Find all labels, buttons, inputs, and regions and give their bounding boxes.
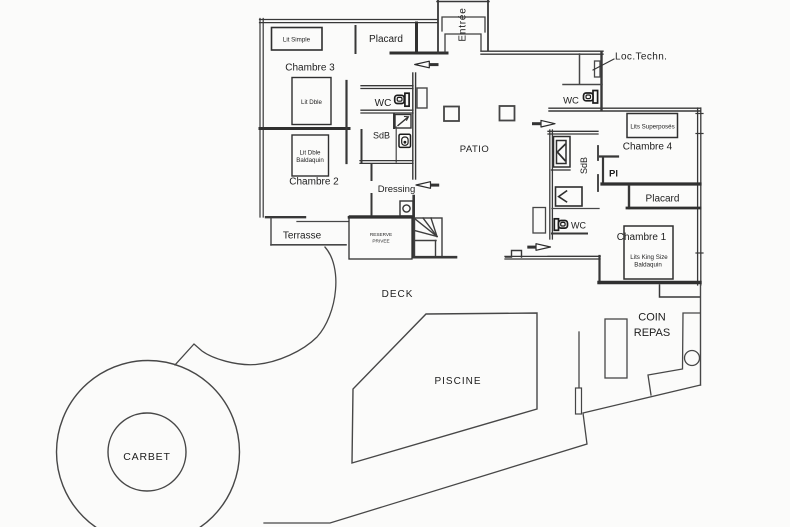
svg-text:Chambre 4: Chambre 4 bbox=[623, 142, 673, 153]
svg-text:SdB: SdB bbox=[373, 131, 390, 141]
svg-text:RESERVE: RESERVE bbox=[370, 232, 392, 237]
svg-text:Dressing: Dressing bbox=[378, 184, 416, 195]
svg-text:WC: WC bbox=[563, 96, 579, 107]
svg-text:Lit Simple: Lit Simple bbox=[283, 37, 311, 44]
svg-text:REPAS: REPAS bbox=[634, 327, 670, 339]
svg-text:Chambre 3: Chambre 3 bbox=[285, 63, 335, 74]
svg-text:Entrée: Entrée bbox=[458, 7, 469, 41]
svg-text:WC: WC bbox=[375, 98, 392, 109]
svg-text:COIN: COIN bbox=[638, 312, 666, 324]
svg-text:Lit Dble: Lit Dble bbox=[301, 99, 323, 106]
svg-text:Lit Dble: Lit Dble bbox=[300, 150, 322, 157]
svg-text:DECK: DECK bbox=[382, 289, 414, 300]
svg-text:Chambre 2: Chambre 2 bbox=[289, 177, 339, 188]
svg-text:Loc.Techn.: Loc.Techn. bbox=[615, 52, 667, 63]
svg-text:Baldaquin: Baldaquin bbox=[296, 157, 324, 164]
svg-text:Pl: Pl bbox=[609, 169, 618, 180]
svg-text:Lits Superposés: Lits Superposés bbox=[630, 124, 674, 131]
svg-text:Lits King Size: Lits King Size bbox=[630, 254, 668, 261]
svg-text:Terrasse: Terrasse bbox=[283, 231, 322, 242]
svg-text:PRIVEE: PRIVEE bbox=[372, 239, 389, 244]
svg-text:Placard: Placard bbox=[369, 34, 403, 45]
svg-text:Placard: Placard bbox=[646, 194, 680, 205]
svg-text:PISCINE: PISCINE bbox=[434, 376, 481, 387]
svg-text:SdB: SdB bbox=[579, 157, 589, 174]
svg-text:WC: WC bbox=[571, 221, 586, 231]
svg-text:PATIO: PATIO bbox=[460, 144, 490, 155]
svg-text:CARBET: CARBET bbox=[123, 451, 170, 463]
svg-text:Baldaquin: Baldaquin bbox=[634, 262, 662, 269]
